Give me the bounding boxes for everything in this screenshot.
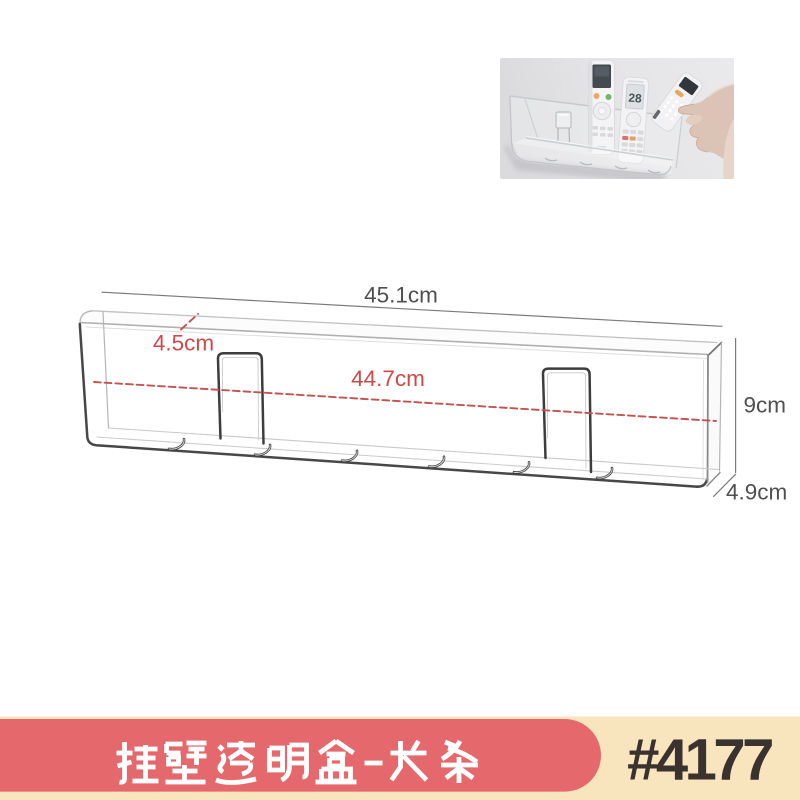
svg-text:4.9cm: 4.9cm — [726, 480, 787, 505]
svg-text:45.1cm: 45.1cm — [364, 283, 438, 308]
svg-text:#4177: #4177 — [627, 728, 772, 793]
svg-text:28: 28 — [628, 91, 643, 106]
svg-text:4.5cm: 4.5cm — [153, 331, 214, 356]
svg-text:9cm: 9cm — [744, 393, 787, 418]
svg-text:44.7cm: 44.7cm — [351, 366, 425, 391]
